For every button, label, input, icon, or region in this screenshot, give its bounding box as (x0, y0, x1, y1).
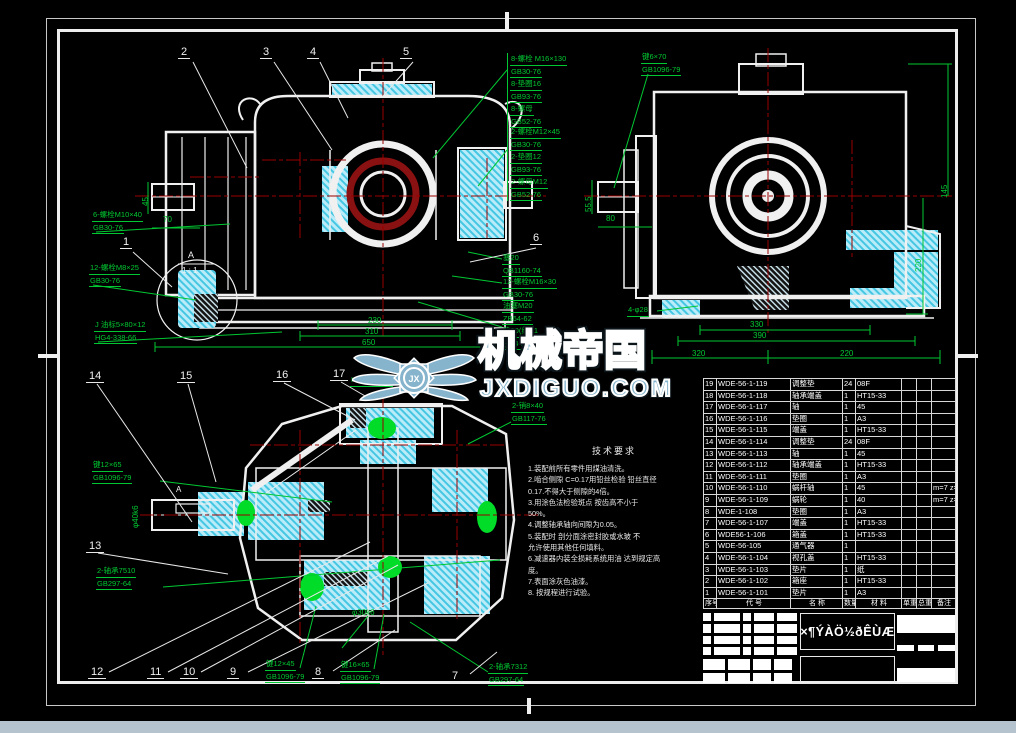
revision-cell (714, 624, 740, 632)
table-cell: WDE-56-105 (717, 541, 791, 553)
table-cell: WDE-56-1-115 (717, 425, 791, 437)
balloon-16: 16 (273, 369, 291, 382)
table-cell (917, 541, 932, 553)
callout-line: 2-螺栓M12×45 (510, 126, 561, 139)
table-cell (917, 379, 932, 391)
table-cell (932, 414, 956, 426)
table-cell: 调整垫 (791, 437, 843, 449)
table-cell: WDE-56-1-109 (717, 495, 791, 507)
balloon-8: 8 (312, 666, 324, 679)
scale-cell (918, 645, 935, 651)
table-cell: 端盖 (791, 425, 843, 437)
table-cell: 轴 (791, 449, 843, 461)
table-cell: WDE-56-1-117 (717, 402, 791, 414)
callout-line: J 油标5×80×12 (94, 319, 146, 332)
signature-cell (703, 673, 725, 684)
watermark-site: JXDIGUO.COM (480, 375, 673, 403)
callout-line: GB297-64 (488, 674, 524, 687)
callout-bolt-m8: 12-螺栓M8×25 GB30-76 (89, 262, 140, 287)
dim-phi30k6: φ30k6 (352, 608, 375, 617)
table-cell (917, 472, 932, 484)
revision-grid (703, 613, 797, 655)
dim-80: 80 (606, 214, 615, 223)
scale-cell (897, 645, 914, 651)
table-cell (917, 565, 932, 577)
table-cell: 08F (856, 379, 902, 391)
balloon-1: 1 (120, 236, 132, 249)
table-cell: A3 (856, 414, 902, 426)
scale-row (897, 645, 955, 651)
table-cell: WDE-56-1-113 (717, 449, 791, 461)
table-cell (917, 425, 932, 437)
table-cell: HT15-33 (856, 460, 902, 472)
table-cell (902, 483, 917, 495)
table-cell (917, 530, 932, 542)
table-cell: WDE-56-1-116 (717, 414, 791, 426)
table-row: 13WDE-56-1-113轴145 (704, 449, 956, 461)
side-view (598, 54, 940, 318)
balloon-17: 17 (330, 368, 348, 381)
revision-cell (703, 624, 711, 632)
table-cell (902, 518, 917, 530)
table-cell: 1 (843, 518, 856, 530)
table-cell: 1 (843, 483, 856, 495)
table-cell: WDE-56-1-103 (717, 565, 791, 577)
table-cell: 5 (704, 541, 717, 553)
table-cell: 15 (704, 425, 717, 437)
callout-line: 12-螺栓M8×25 (89, 262, 140, 275)
revision-cell (754, 636, 774, 644)
callout-line: 塞20 (502, 252, 520, 265)
table-row: 2WDE-56-1-102箱座1HT15-33 (704, 576, 956, 588)
callout-line: ZB64-62 (502, 313, 533, 326)
callout-line: GB297-64 (96, 578, 132, 591)
callout-bolt-m16-stack: 8-螺栓 M16×130 GB30-76 8-垫圈16 GB93-76 8-螺母… (507, 53, 567, 128)
table-cell: 垫片 (791, 588, 843, 600)
parts-table: 19WDE-56-1-119调整垫2408F18WDE-56-1-118轴承端盖… (703, 378, 956, 609)
table-cell: A3 (856, 472, 902, 484)
parts-table-body: 19WDE-56-1-119调整垫2408F18WDE-56-1-118轴承端盖… (704, 379, 956, 609)
dim-145: 145 (940, 185, 949, 198)
table-cell: 9 (704, 495, 717, 507)
balloon-11: 11 (147, 666, 164, 679)
table-cell: 1 (843, 565, 856, 577)
callout-line: HG4-338-66 (94, 332, 137, 345)
balloon-7: 7 (449, 670, 461, 683)
taskbar-strip (0, 721, 1016, 733)
balloon-13: 13 (86, 540, 104, 553)
table-cell: A3 (856, 588, 902, 600)
balloon-5: 5 (400, 46, 412, 59)
balloon-10: 10 (180, 666, 198, 679)
revision-cell (703, 613, 711, 621)
table-cell: 45 (856, 483, 902, 495)
dim-220-right: 220 (914, 259, 923, 272)
table-cell: 14 (704, 437, 717, 449)
callout-line: 键6×70 (641, 51, 667, 64)
table-cell (902, 437, 917, 449)
table-cell (917, 391, 932, 403)
table-cell (917, 437, 932, 449)
revision-cell (777, 636, 797, 644)
table-cell: 视孔盖 (791, 553, 843, 565)
table-cell: A3 (856, 507, 902, 519)
table-header-cell: 单重 (902, 599, 917, 609)
callout-line: 油塞M20 (502, 300, 534, 313)
table-cell (902, 541, 917, 553)
scale-cell (938, 645, 955, 651)
table-cell: m=7 z=2 (932, 483, 956, 495)
table-cell (902, 588, 917, 600)
signature-cell (703, 659, 725, 670)
callout-line: 2-轴承7312 (488, 661, 528, 674)
table-cell (932, 541, 956, 553)
table-cell (917, 576, 932, 588)
callout-line: GB30-76 (510, 139, 542, 152)
table-cell: 1 (843, 414, 856, 426)
table-cell: m=7 z=31 (932, 495, 956, 507)
callout-line: GB1096-79 (92, 472, 132, 485)
table-cell (932, 553, 956, 565)
tech-line: 0.17.不得大于侧隙的4倍。 (528, 486, 700, 497)
callout-line: GB1096-79 (340, 672, 380, 685)
table-row: 5WDE-56-105通气器1 (704, 541, 956, 553)
table-cell: 45 (856, 449, 902, 461)
table-cell (917, 553, 932, 565)
tech-title: 技术要求 (528, 444, 700, 457)
table-row: 12WDE-56-1-112轴承端盖1HT15-33 (704, 460, 956, 472)
table-cell (902, 495, 917, 507)
table-cell: HT15-33 (856, 553, 902, 565)
callout-plug-20: 塞20 QB1160-74 (502, 252, 542, 277)
signature-cell (753, 659, 771, 670)
table-cell: WDE-56-1-119 (717, 379, 791, 391)
front-view (152, 63, 532, 340)
table-cell: 1 (843, 541, 856, 553)
table-cell: 3 (704, 565, 717, 577)
table-cell: WDE-1-108 (717, 507, 791, 519)
callout-line: 2-垫圈12 (510, 151, 542, 164)
table-cell (917, 495, 932, 507)
table-cell (932, 379, 956, 391)
table-header-cell: 序号 (704, 599, 717, 609)
table-cell: 1 (843, 425, 856, 437)
table-cell: WDE-56-1-102 (717, 576, 791, 588)
title-block-box (800, 656, 895, 684)
balloon-4: 4 (307, 46, 319, 59)
table-row: 7WDE-56-1-107端盖1HT15-33 (704, 518, 956, 530)
table-cell (902, 414, 917, 426)
table-row: 6WDE56-1-106箱盖1HT15-33 (704, 530, 956, 542)
table-cell: 1 (843, 449, 856, 461)
dim-220-bottom: 220 (840, 349, 853, 358)
table-cell (902, 379, 917, 391)
callout-line: 6-螺栓M10×40 (92, 209, 143, 222)
dim-330: 330 (750, 320, 763, 329)
table-cell (917, 483, 932, 495)
table-cell: 蜗轮 (791, 495, 843, 507)
signature-cell (728, 673, 750, 684)
table-cell: WDE-56-1-107 (717, 518, 791, 530)
table-cell (932, 507, 956, 519)
dim-390: 390 (753, 331, 766, 340)
table-row: 1WDE-56-1-101垫片1A3 (704, 588, 956, 600)
revision-cell (743, 647, 751, 655)
table-cell: WDE-56-1-104 (717, 553, 791, 565)
table-cell: 垫圈 (791, 414, 843, 426)
dim-45: 45 (141, 197, 150, 206)
table-cell: 18 (704, 391, 717, 403)
table-cell (902, 507, 917, 519)
table-cell: HT15-33 (856, 518, 902, 530)
revision-cell (754, 613, 774, 621)
callout-key-12x45: 键12×45 GB1096-79 (265, 658, 305, 683)
callout-line: 12-螺栓M16×30 (502, 276, 557, 289)
callout-bearing-7312: 2-轴承7312 GB297-64 (488, 661, 528, 686)
table-cell: 轴承端盖 (791, 460, 843, 472)
table-cell: WDE-56-1-114 (717, 437, 791, 449)
revision-cell (754, 647, 774, 655)
callout-line: 2-螺母M12 (510, 176, 548, 189)
table-header-cell: 数量 (843, 599, 856, 609)
table-cell: 13 (704, 449, 717, 461)
table-cell: 1 (843, 576, 856, 588)
table-cell: 17 (704, 402, 717, 414)
balloon-14: 14 (86, 370, 104, 383)
tech-line: 度。 (528, 565, 700, 576)
callout-line: 8-螺栓 M16×130 (510, 53, 567, 66)
tech-line: 2.啮合侧隙 C=0.17用铅丝检验 铅丝直径 (528, 474, 700, 485)
tech-lines: 1.装配前所有零件用煤油清洗。2.啮合侧隙 C=0.17用铅丝检验 铅丝直径0.… (528, 463, 700, 599)
table-cell: 1 (843, 391, 856, 403)
table-row: 3WDE-56-1-103垫片1纸 (704, 565, 956, 577)
table-cell: 4 (704, 553, 717, 565)
table-row: 9WDE-56-1-109蜗轮140m=7 z=31 (704, 495, 956, 507)
cad-canvas: 2 3 4 5 1 6 14 15 16 17 13 12 11 10 9 8 … (0, 0, 1016, 733)
table-row: 16WDE-56-1-116垫圈1A3 (704, 414, 956, 426)
table-cell (932, 472, 956, 484)
table-header-row: 序号代 号名 称数量材 料单重总重备注 (704, 599, 956, 609)
callout-line: 键12×65 (92, 459, 123, 472)
table-cell: 通气器 (791, 541, 843, 553)
callout-line: GB93-76 (510, 164, 542, 177)
table-cell (932, 402, 956, 414)
signature-grid (703, 659, 793, 683)
callout-line: GB1096-79 (641, 64, 681, 77)
table-row: 18WDE-56-1-118轴承端盖1HT15-33 (704, 391, 956, 403)
dim-70: 70 (163, 215, 172, 224)
revision-cell (714, 613, 740, 621)
balloon-9: 9 (227, 666, 239, 679)
balloon-12: 12 (88, 666, 106, 679)
table-row: 11WDE-56-1-111垫圈1A3 (704, 472, 956, 484)
table-cell (932, 518, 956, 530)
table-header-cell: 材 料 (856, 599, 902, 609)
table-cell: 8 (704, 507, 717, 519)
table-cell: WDE-56-1-101 (717, 588, 791, 600)
table-cell (902, 460, 917, 472)
tech-line: 50%。 (528, 508, 700, 519)
table-cell: HT15-33 (856, 576, 902, 588)
table-cell: 45 (856, 402, 902, 414)
signature-cell (774, 659, 792, 670)
watermark: JX 机械帝国 JXDIGUO.COM (352, 330, 672, 410)
logo-monogram: JX (408, 374, 419, 384)
callout-line: GB52-76 (510, 189, 542, 202)
dim-230: 230 (368, 316, 381, 325)
balloon-2: 2 (178, 46, 190, 59)
table-cell: 1 (843, 495, 856, 507)
table-cell (917, 460, 932, 472)
callout-line: GB30-76 (92, 222, 124, 235)
callout-bolt-m10: 6-螺栓M10×40 GB30-76 (92, 209, 143, 234)
table-cell (856, 541, 902, 553)
callout-key-16x65: 键16×65 GB1096-79 (340, 659, 380, 684)
tech-line: 6.减速器内装全损耗系统用油 达到规定高 (528, 553, 700, 564)
table-cell: 12 (704, 460, 717, 472)
signature-cell (774, 673, 792, 684)
table-cell: 24 (843, 437, 856, 449)
table-cell: HT15-33 (856, 391, 902, 403)
table-header-cell: 备注 (932, 599, 956, 609)
callout-line: GB30-76 (510, 66, 542, 79)
dim-55-5: 55.5 (584, 196, 593, 212)
table-cell: 1 (843, 507, 856, 519)
drawing-title-cell: ×¶ÝÀÖ½ðÊÙÆ (800, 613, 895, 650)
table-cell: 11 (704, 472, 717, 484)
revision-cell (754, 624, 774, 632)
revision-cell (743, 624, 751, 632)
callout-line: 8-垫圈16 (510, 78, 542, 91)
table-cell (932, 588, 956, 600)
table-cell (902, 530, 917, 542)
table-row: 14WDE-56-1-114调整垫2408F (704, 437, 956, 449)
callout-oil-gauge: J 油标5×80×12 HG4-338-66 (94, 319, 146, 344)
table-cell (917, 507, 932, 519)
table-cell: 纸 (856, 565, 902, 577)
table-cell: 2 (704, 576, 717, 588)
table-cell (932, 565, 956, 577)
table-header-cell: 总重 (917, 599, 932, 609)
table-cell (902, 402, 917, 414)
callout-line: GB117-76 (511, 413, 547, 426)
table-cell (902, 553, 917, 565)
table-cell: 6 (704, 530, 717, 542)
table-row: 4WDE-56-1-104视孔盖1HT15-33 (704, 553, 956, 565)
callout-line: 键12×45 (265, 658, 296, 671)
signature-cell (753, 673, 771, 684)
table-cell: 7 (704, 518, 717, 530)
callout-bolt-m12-stack: 2-螺栓M12×45 GB30-76 2-垫圈12 GB93-76 2-螺母M1… (507, 126, 561, 201)
table-cell: 1 (704, 588, 717, 600)
callout-bolt-m16x30: 12-螺栓M16×30 GB30-76 (502, 276, 557, 301)
tech-line: 5.装配时 剖分面涂密封胶或水玻 不 (528, 531, 700, 542)
table-cell: 19 (704, 379, 717, 391)
bottom-view (152, 404, 514, 640)
callout-key-6x70: 键6×70 GB1096-79 (641, 51, 681, 76)
tech-line: 8. 按规程进行试验。 (528, 587, 700, 598)
table-cell: 1 (843, 588, 856, 600)
balloon-3: 3 (260, 46, 272, 59)
drawing-title: ×¶ÝÀÖ½ðÊÙÆ (800, 625, 894, 639)
table-cell (917, 449, 932, 461)
table-cell: 垫片 (791, 565, 843, 577)
tech-line: 3.用涂色法检验斑点 按齿高不小于 (528, 497, 700, 508)
table-cell (932, 391, 956, 403)
detail-letter: A (188, 250, 194, 260)
revision-cell (714, 636, 740, 644)
table-cell: 垫圈 (791, 472, 843, 484)
callout-line: 4-φ28 (627, 304, 649, 317)
gear-icon: JX (394, 358, 434, 398)
callout-line: GB1096-79 (265, 671, 305, 684)
table-cell (917, 414, 932, 426)
dim-phi40k6: φ40k6 (131, 505, 140, 528)
table-header-cell: 名 称 (791, 599, 843, 609)
revision-cell (743, 613, 751, 621)
table-cell (932, 576, 956, 588)
table-cell (902, 391, 917, 403)
table-cell: 箱盖 (791, 530, 843, 542)
table-cell: 1 (843, 460, 856, 472)
table-cell: 24 (843, 379, 856, 391)
tech-line: 7.表面涂灰色油漆。 (528, 576, 700, 587)
revision-cell (777, 624, 797, 632)
revision-cell (777, 613, 797, 621)
table-cell: 1 (843, 402, 856, 414)
callout-key-12x65: 键12×65 GB1096-79 (92, 459, 132, 484)
table-cell: WDE-56-1-118 (717, 391, 791, 403)
dim-320: 320 (692, 349, 705, 358)
table-cell: 垫圈 (791, 507, 843, 519)
table-row: 19WDE-56-1-119调整垫2408F (704, 379, 956, 391)
callout-line: 2-轴承7510 (96, 565, 136, 578)
revision-cell (703, 647, 711, 655)
callout-bearing-7510: 2-轴承7510 GB297-64 (96, 565, 136, 590)
table-row: 10WDE-56-1-110蜗杆轴145m=7 z=2 (704, 483, 956, 495)
signature-cell (728, 659, 750, 670)
table-cell (932, 530, 956, 542)
table-cell: WDE-56-1-112 (717, 460, 791, 472)
balloon-6: 6 (530, 232, 542, 245)
table-cell: 08F (856, 437, 902, 449)
table-cell: HT15-33 (856, 425, 902, 437)
table-cell: 箱座 (791, 576, 843, 588)
callout-line: GB30-76 (89, 275, 121, 288)
tech-line: 允许使用其他任何填料。 (528, 542, 700, 553)
table-cell: WDE56-1-106 (717, 530, 791, 542)
table-cell (932, 449, 956, 461)
table-cell: 轴 (791, 402, 843, 414)
table-cell: 16 (704, 414, 717, 426)
watermark-logo: JX (352, 338, 478, 418)
table-row: 8WDE-1-108垫圈1A3 (704, 507, 956, 519)
table-cell: WDE-56-1-110 (717, 483, 791, 495)
callout-line: GB93-76 (510, 91, 542, 104)
table-cell: 1 (843, 553, 856, 565)
table-cell (902, 565, 917, 577)
callout-holes-28: 4-φ28 (627, 304, 649, 317)
table-cell: WDE-56-1-111 (717, 472, 791, 484)
table-cell (902, 449, 917, 461)
table-cell: 端盖 (791, 518, 843, 530)
table-cell: 40 (856, 495, 902, 507)
table-row: 17WDE-56-1-117轴145 (704, 402, 956, 414)
table-cell: 10 (704, 483, 717, 495)
tech-line: 4.调整轴承轴向间隙为0.05。 (528, 519, 700, 530)
table-cell (902, 472, 917, 484)
callout-line: 键16×65 (340, 659, 371, 672)
